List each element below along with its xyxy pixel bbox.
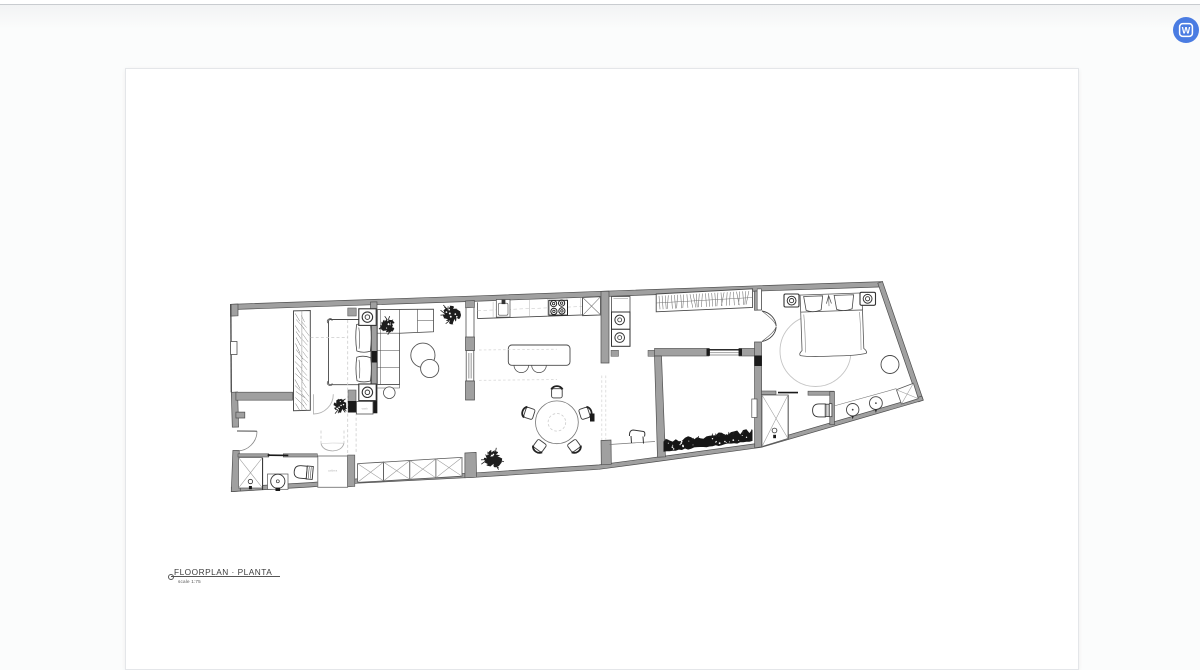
- svg-text:wash: wash: [362, 407, 369, 411]
- svg-text:caldera: caldera: [328, 468, 338, 472]
- svg-text:W: W: [1182, 26, 1191, 36]
